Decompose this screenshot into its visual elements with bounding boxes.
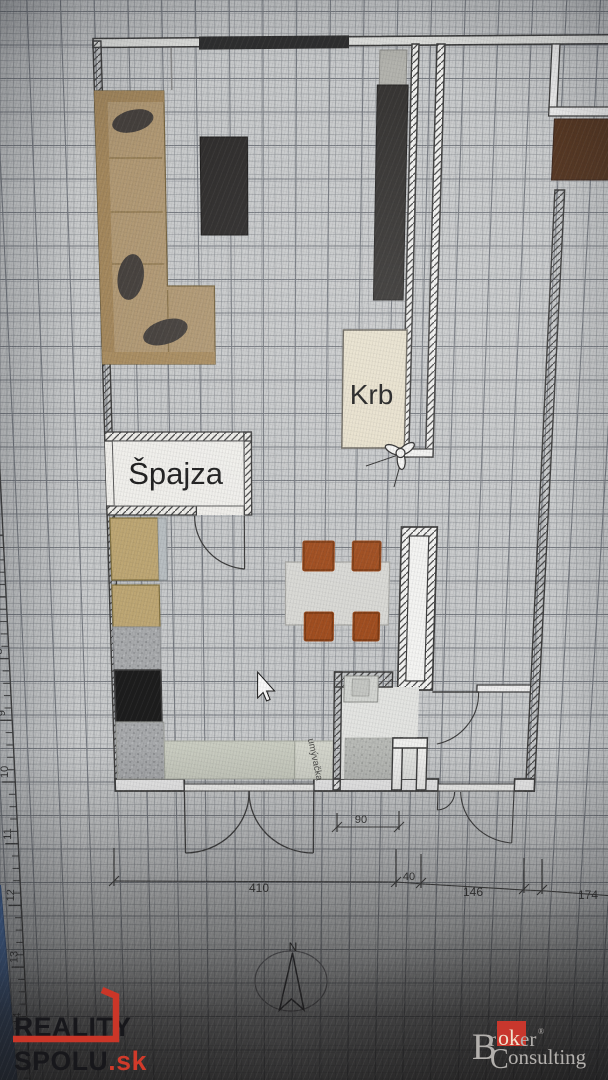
svg-text:13: 13 [8,951,20,963]
svg-text:410: 410 [249,881,269,895]
svg-text:10: 10 [0,766,11,778]
svg-text:146: 146 [463,885,483,899]
svg-text:Špajza: Špajza [128,456,224,491]
svg-text:®: ® [538,1027,544,1036]
svg-text:40: 40 [403,871,415,883]
svg-text:SPOLU.sk: SPOLU.sk [14,1046,147,1076]
svg-text:174: 174 [578,888,598,902]
svg-text:Krb: Krb [350,379,394,410]
svg-text:onsulting: onsulting [508,1045,587,1069]
svg-text:11: 11 [2,828,14,839]
svg-text:C: C [490,1044,509,1075]
svg-text:N: N [289,940,298,954]
svg-text:8: 8 [0,648,5,654]
svg-text:90: 90 [355,814,367,826]
svg-text:9: 9 [0,710,8,716]
svg-text:12: 12 [5,889,17,901]
svg-text:7: 7 [0,587,2,593]
